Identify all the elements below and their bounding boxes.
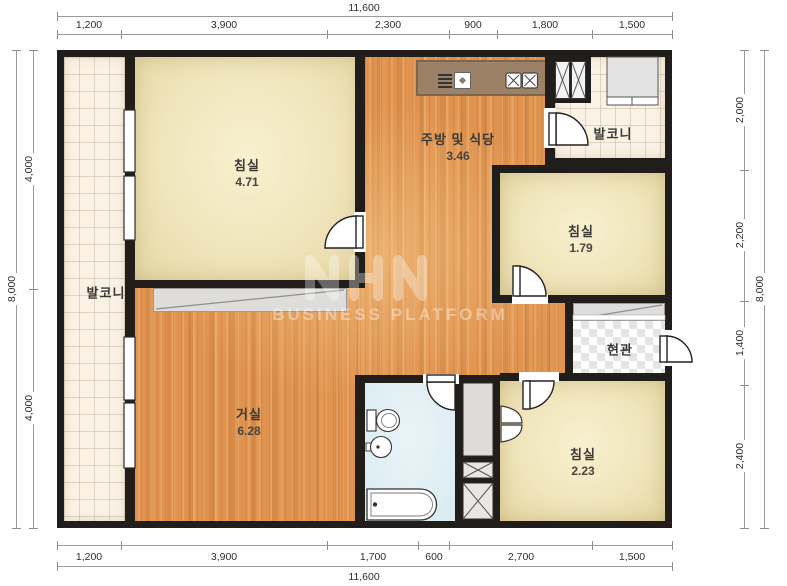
dim-right-2: 2,200 [734, 219, 746, 251]
dim-top-2: 3,900 [208, 19, 240, 31]
dim-bottom-3: 1,700 [357, 551, 389, 563]
label-entrance: 현관 [607, 340, 633, 359]
entrance-closet [573, 303, 665, 321]
ruler-line [57, 566, 672, 567]
label-bedroom-middle: 침실 1.79 [568, 221, 594, 255]
wardrobe [153, 288, 347, 312]
wall [492, 295, 665, 303]
ruler-line [57, 34, 672, 35]
wall [355, 375, 365, 521]
wall [355, 57, 365, 288]
dim-top-5: 1,800 [529, 19, 561, 31]
storage-block [551, 57, 591, 103]
kitchen-counter [416, 60, 553, 96]
wall [492, 165, 665, 173]
label-balcony-right: 발코니 [594, 124, 633, 143]
dim-left-2: 4,000 [23, 392, 35, 424]
dim-right-total: 8,000 [754, 273, 766, 305]
label-balcony-left: 발코니 [87, 283, 126, 302]
dim-left-total: 8,000 [6, 273, 18, 305]
wall [500, 373, 665, 381]
dim-left-1: 4,000 [23, 153, 35, 185]
floor-plan-canvas: 11,600 1,200 3,900 2,300 900 1,800 1,500… [0, 0, 787, 586]
label-living-room: 거실 6.28 [236, 404, 262, 438]
label-bedroom-small: 침실 2.23 [570, 444, 596, 478]
ruler-line [57, 545, 672, 546]
dim-bottom-2: 3,900 [208, 551, 240, 563]
wall [355, 375, 455, 383]
wall [545, 158, 665, 166]
wall [135, 280, 365, 288]
dim-bottom-total: 11,600 [345, 571, 382, 583]
label-bedroom-main: 침실 4.71 [234, 155, 260, 189]
dim-right-3: 1,400 [734, 327, 746, 359]
dim-bottom-5: 2,700 [505, 551, 537, 563]
dim-bottom-1: 1,200 [73, 551, 105, 563]
dim-right-1: 2,000 [734, 94, 746, 126]
dim-top-total: 11,600 [345, 2, 382, 14]
wall [125, 57, 135, 521]
dim-right-4: 2,400 [734, 440, 746, 472]
label-kitchen-dining: 주방 및 식당 3.46 [421, 129, 495, 163]
dim-bottom-4: 600 [422, 551, 446, 563]
dim-top-4: 900 [461, 19, 485, 31]
dim-top-1: 1,200 [73, 19, 105, 31]
dim-bottom-6: 1,500 [616, 551, 648, 563]
wall [492, 165, 500, 303]
dim-top-6: 1,500 [616, 19, 648, 31]
duct-shaft-block [455, 375, 500, 521]
wall [565, 303, 573, 381]
bathroom-floor [363, 381, 457, 521]
dim-top-3: 2,300 [372, 19, 404, 31]
ruler-line [57, 16, 672, 17]
